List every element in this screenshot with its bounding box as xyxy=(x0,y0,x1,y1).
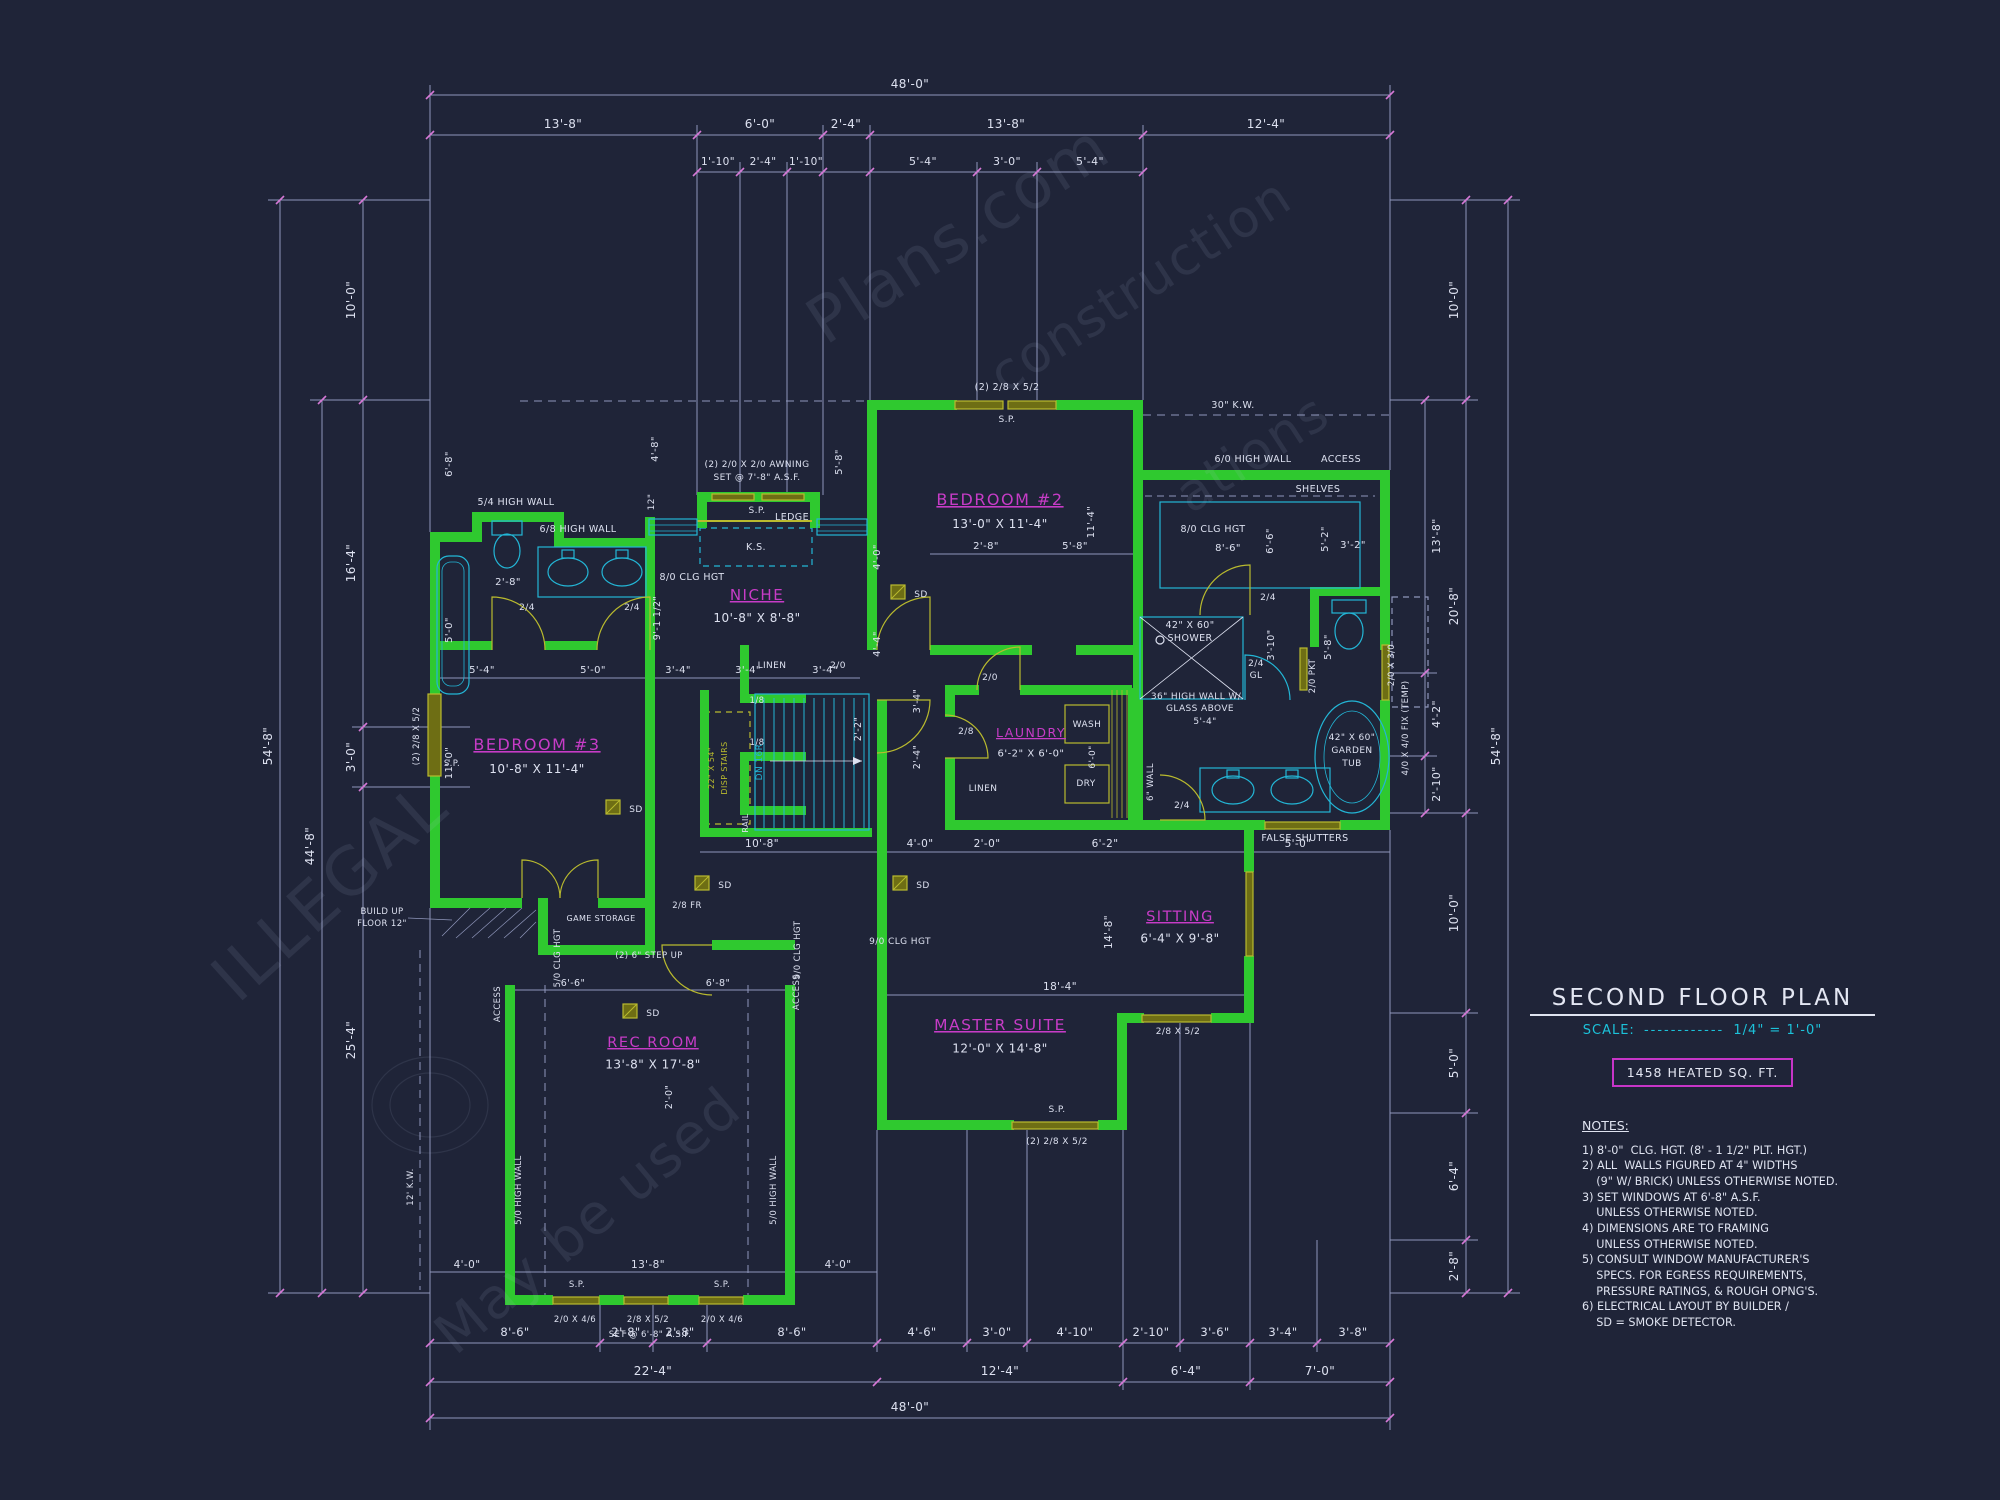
annotation-text: 7'-0" xyxy=(1305,1364,1335,1378)
annotation-text: 12" xyxy=(647,494,657,511)
wall xyxy=(785,985,795,1303)
annotation-text: 3'-10" xyxy=(1266,630,1277,661)
annotation-text: 9/0 CLG HGT xyxy=(793,920,803,979)
annotation-text: 3'-0" xyxy=(982,1325,1011,1339)
annotation-text: 5'-8" xyxy=(1062,541,1088,552)
annotation-text: 1'-10" xyxy=(701,156,735,168)
annotation-text: 8/0 CLG HGT xyxy=(660,572,725,583)
annotation-text: DN 16R xyxy=(755,744,765,781)
window xyxy=(762,494,804,500)
notes-section: NOTES: 1) 8'-0" CLG. HGT. (8' - 1 1/2" P… xyxy=(1530,1117,1875,1331)
annotation-text: LINEN xyxy=(969,784,998,794)
annotation-text: GL xyxy=(1250,671,1263,681)
annotation-text: 2'-0" xyxy=(974,838,1001,850)
watermark: ILLEGAL xyxy=(197,766,463,1016)
annotation-text: 4'-0" xyxy=(825,1259,852,1271)
note-line: 3) SET WINDOWS AT 6'-8" A.S.F. xyxy=(1582,1190,1875,1206)
scale-label: SCALE: xyxy=(1583,1023,1635,1038)
annotation-text: 5'-8" xyxy=(834,449,845,475)
window xyxy=(1246,872,1253,956)
annotation-text: (2) 2/8 X 5/2 xyxy=(412,707,422,766)
annotation-text: 5'-0" xyxy=(580,665,606,676)
plan-line xyxy=(456,908,490,938)
annotation-text: 3'-4" xyxy=(912,689,923,714)
annotation-text: 13'-8" xyxy=(1430,518,1443,553)
scale-value: 1/4" = 1'-0" xyxy=(1733,1023,1822,1038)
wall xyxy=(1098,1120,1117,1130)
annotation-text: 2'-8" xyxy=(1447,1251,1461,1281)
annotation-text: SD xyxy=(916,881,929,891)
annotation-text: 9/0 CLG HGT xyxy=(869,937,931,947)
window xyxy=(817,519,867,535)
annotation-text: 8'-6" xyxy=(1215,543,1241,554)
toilet-tank xyxy=(1332,600,1366,613)
annotation-text: 5'-2" xyxy=(1320,526,1331,552)
annotation-text: 10'-0" xyxy=(1447,281,1461,319)
wall xyxy=(1380,470,1390,650)
plan-title: SECOND FLOOR PLAN xyxy=(1530,985,1875,1016)
stair-arrow-head xyxy=(853,757,862,765)
wall xyxy=(1340,820,1390,830)
wall xyxy=(740,752,749,810)
annotation-text: 2/0 xyxy=(982,673,998,683)
annotation-text: 12'-4" xyxy=(981,1364,1019,1378)
annotation-text: 2'-10" xyxy=(1430,766,1443,801)
annotation-text: S.P. xyxy=(714,1280,730,1290)
notes-title: NOTES: xyxy=(1582,1117,1875,1135)
annotation-text: 11'-0" xyxy=(444,747,455,779)
annotation-text: 3'-0" xyxy=(344,742,358,772)
faucet xyxy=(616,550,628,558)
window xyxy=(553,1297,599,1304)
annotation-text: 36" HIGH WALL W/ xyxy=(1151,692,1242,702)
annotation-text: 22" X 54" xyxy=(707,747,716,789)
wall xyxy=(1076,645,1133,655)
annotation-text: 18'-4" xyxy=(1043,981,1077,993)
wall xyxy=(1020,685,1132,695)
annotation-text: 6'-0" xyxy=(745,117,775,131)
annotation-text: 2/4 xyxy=(624,603,640,613)
window xyxy=(649,519,697,535)
annotation-text: GAME STORAGE xyxy=(566,914,635,923)
annotation-text: 2/0 X 4/6 xyxy=(701,1315,743,1325)
annotation-text: 22'-4" xyxy=(634,1364,672,1378)
annotation-text: 2/8 X 5/2 xyxy=(627,1315,669,1325)
plan-ellipse xyxy=(1324,711,1380,803)
annotation-text: 5'-4" xyxy=(909,155,937,168)
window xyxy=(1012,1122,1098,1129)
heated-area-box: 1458 HEATED SQ. FT. xyxy=(1612,1058,1794,1087)
annotation-text: 1/8 xyxy=(750,696,765,706)
annotation-text: 2/8 xyxy=(958,727,974,737)
sink xyxy=(1271,776,1313,804)
annotation-text: SET @ 7'-8" A.S.F. xyxy=(713,473,800,483)
wall xyxy=(545,641,597,650)
annotation-text: 6'-6" xyxy=(561,978,586,989)
wall xyxy=(430,532,440,696)
room-label: LAUNDRY xyxy=(996,725,1066,740)
annotation-text: 13'-8" xyxy=(544,117,582,131)
note-line: SPECS. FOR EGRESS REQUIREMENTS, xyxy=(1582,1268,1875,1284)
annotation-text: 3'-8" xyxy=(1338,1325,1367,1339)
annotation-text: 5/4 HIGH WALL xyxy=(478,497,555,508)
annotation-text: 4'-0" xyxy=(872,544,883,570)
toilet-tank xyxy=(492,521,522,535)
annotation-text: 2'-8" xyxy=(973,541,999,552)
wall xyxy=(867,400,877,650)
wall xyxy=(599,1295,624,1305)
wall xyxy=(740,752,806,761)
annotation-text: SHELVES xyxy=(1296,484,1341,495)
garden-tub xyxy=(1315,701,1389,813)
room-label: MASTER SUITE xyxy=(934,1016,1066,1034)
wall xyxy=(712,940,795,950)
annotation-text: 10'-8" xyxy=(745,838,779,850)
plan-line xyxy=(472,908,506,938)
annotation-text: 2'-4" xyxy=(750,156,777,168)
annotation-text: 2/0 X 4/6 xyxy=(554,1315,596,1325)
annotation-text: 5'-4" xyxy=(469,665,495,676)
plan-line xyxy=(520,922,536,938)
annotation-text: SD xyxy=(646,1009,659,1019)
annotation-text: LEDGE xyxy=(775,512,809,523)
wall xyxy=(945,685,955,717)
annotation-text: 13'-8" xyxy=(987,117,1025,131)
window xyxy=(712,494,754,500)
title-block: SECOND FLOOR PLAN SCALE: ------------ 1/… xyxy=(1530,985,1875,1331)
window xyxy=(699,1297,743,1304)
wall xyxy=(430,898,522,908)
wall xyxy=(1244,956,1254,1023)
annotation-text: 1'-10" xyxy=(789,156,823,168)
annotation-text: GLASS ABOVE xyxy=(1166,704,1234,714)
annotation-text: RAIL xyxy=(741,813,750,832)
annotation-text: DISP STAIRS xyxy=(720,741,729,794)
annotation-text: 6/8 HIGH WALL xyxy=(540,524,617,535)
room-size: 12'-0" X 14'-8" xyxy=(952,1042,1047,1056)
vanity xyxy=(538,547,646,597)
wall xyxy=(668,1295,699,1305)
plan-scale: SCALE: ------------ 1/4" = 1'-0" xyxy=(1530,1023,1875,1038)
sink xyxy=(1212,776,1254,804)
annotation-text: SD xyxy=(718,881,731,891)
wall xyxy=(930,645,1032,655)
door-swing xyxy=(1200,565,1250,615)
wall xyxy=(1056,400,1143,410)
wall xyxy=(945,820,1135,830)
note-line: UNLESS OTHERWISE NOTED. xyxy=(1582,1237,1875,1253)
annotation-text: 8/0 CLG HGT xyxy=(1181,524,1246,535)
room-label: BEDROOM #2 xyxy=(936,490,1063,509)
room-label: REC ROOM xyxy=(607,1035,698,1051)
window xyxy=(1265,822,1340,829)
annotation-text: 6'-2" xyxy=(1092,838,1119,850)
annotation-text: 5/0 HIGH WALL xyxy=(514,1155,524,1224)
shower-drain xyxy=(1156,636,1164,644)
annotation-text: 48'-0" xyxy=(891,1400,929,1414)
wall xyxy=(743,1295,795,1305)
annotation-text: SD xyxy=(629,805,642,815)
annotation-text: 4'-8" xyxy=(650,436,661,462)
wall xyxy=(645,898,655,955)
faucet xyxy=(562,550,574,558)
annotation-text: 2/0 PKT xyxy=(1308,658,1318,693)
annotation-text: S.P. xyxy=(998,415,1015,425)
annotation-text: TUB xyxy=(1341,759,1361,769)
annotation-text: 2/8 FR xyxy=(672,901,702,911)
wall xyxy=(1133,820,1265,830)
annotation-text: 2'-4" xyxy=(912,745,923,770)
room-size: 6'-2" X 6'-0" xyxy=(997,749,1064,760)
annotation-text: 12'-4" xyxy=(1247,117,1285,131)
annotation-text: 4'-4" xyxy=(872,631,883,657)
sink xyxy=(548,558,588,586)
annotation-text: 16'-4" xyxy=(344,544,358,582)
room-size: 13'-8" X 17'-8" xyxy=(605,1058,700,1072)
annotation-text: 3'-4" xyxy=(1268,1325,1297,1339)
annotation-text: 42" X 60" xyxy=(1329,733,1376,743)
annotation-text: 25'-4" xyxy=(344,1021,358,1059)
annotation-text: 6'-8" xyxy=(444,451,455,477)
toilet xyxy=(1335,613,1363,649)
annotation-text: 2'-4" xyxy=(831,117,861,131)
wall xyxy=(554,538,654,547)
annotation-text: 48'-0" xyxy=(891,77,929,91)
annotation-text: 42" X 60" xyxy=(1165,620,1214,631)
annotation-text: 4'-10" xyxy=(1057,1325,1094,1339)
annotation-text: 6" WALL xyxy=(1146,763,1156,801)
annotation-text: 4'-0" xyxy=(454,1259,481,1271)
heated-area-value: 1458 HEATED SQ. FT. xyxy=(1627,1065,1779,1080)
annotation-text: 2/4 xyxy=(1260,593,1276,603)
window xyxy=(955,401,1003,409)
annotation-text: 5'-0" xyxy=(1285,838,1312,850)
annotation-text: 6'-8" xyxy=(706,978,731,989)
notes-list: 1) 8'-0" CLG. HGT. (8' - 1 1/2" PLT. HGT… xyxy=(1582,1143,1875,1331)
note-line: SD = SMOKE DETECTOR. xyxy=(1582,1315,1875,1331)
annotation-text: 4'-2" xyxy=(1430,700,1443,728)
room-label: SITTING xyxy=(1146,909,1214,925)
annotation-text: 5'-0" xyxy=(1447,1048,1461,1078)
annotation-text: K.S. xyxy=(746,542,766,553)
wall xyxy=(430,641,492,650)
annotation-text: SHOWER xyxy=(1167,633,1212,644)
annotation-text: S.P. xyxy=(1048,1105,1065,1115)
annotation-text: 2'-10" xyxy=(1133,1325,1170,1339)
room-label: BEDROOM #3 xyxy=(473,735,600,754)
plan-line xyxy=(488,908,522,938)
annotation-text: 2'-2" xyxy=(853,717,864,742)
note-line: 4) DIMENSIONS ARE TO FRAMING xyxy=(1582,1221,1875,1237)
wall xyxy=(1117,1013,1144,1023)
vanity xyxy=(1200,768,1330,812)
annotation-text: ACCESS xyxy=(1321,454,1361,465)
wall xyxy=(1128,688,1138,828)
annotation-text: WASH xyxy=(1073,720,1102,730)
sink xyxy=(602,558,642,586)
plan-line xyxy=(442,908,470,936)
wall xyxy=(877,700,887,1130)
window xyxy=(624,1297,668,1304)
annotation-text: 10'-0" xyxy=(344,281,358,319)
wall xyxy=(1133,470,1143,562)
annotation-text: S.P. xyxy=(748,506,765,516)
door-swing xyxy=(1160,775,1205,820)
annotation-text: 20'-8" xyxy=(1447,587,1461,625)
annotation-text: 4/0 X 4/0 FIX (TEMP) xyxy=(1401,681,1411,776)
annotation-text: (2) 6" STEP UP xyxy=(615,951,683,961)
annotation-text: 14'-8" xyxy=(1103,915,1115,949)
annotation-text: 54'-8" xyxy=(261,727,275,765)
annotation-text: 2/0 X 3/0 xyxy=(1387,644,1397,686)
annotation-text: 3'-2" xyxy=(1340,540,1366,551)
annotation-text: 3'-4" xyxy=(665,665,691,676)
wall xyxy=(1244,830,1254,872)
annotation-text: FLOOR 12" xyxy=(357,919,407,929)
annotation-text: 5'-0" xyxy=(444,617,455,643)
annotation-text: 2/4 xyxy=(1248,659,1264,669)
annotation-text: 2'-0" xyxy=(664,1085,675,1110)
annotation-text: 5/0 HIGH WALL xyxy=(769,1155,779,1224)
annotation-text: 2/4 xyxy=(519,603,535,613)
door-swing xyxy=(522,860,560,898)
annotation-text: 10'-0" xyxy=(1447,894,1461,932)
annotation-text: 13'-8" xyxy=(631,1259,665,1271)
annotation-text: (2) 2/0 X 2/0 AWNING xyxy=(705,460,810,470)
blueprint-page: SDSDSDSDSD48'-0"13'-8"6'-0"2'-4"13'-8"12… xyxy=(0,0,2000,1500)
annotation-text: ACCESS xyxy=(493,986,503,1022)
annotation-text: 6'-4" xyxy=(1447,1161,1461,1191)
note-line: PRESSURE RATINGS, & ROUGH OPNG'S. xyxy=(1582,1284,1875,1300)
annotation-text: 2/8 X 5/2 xyxy=(1156,1027,1200,1037)
note-line: 5) CONSULT WINDOW MANUFACTURER'S xyxy=(1582,1252,1875,1268)
wall xyxy=(877,1120,1014,1130)
annotation-text: 3'-6" xyxy=(1200,1325,1229,1339)
window xyxy=(1142,1015,1211,1022)
annotation-text: 2/4 xyxy=(1174,801,1190,811)
wall xyxy=(700,828,872,837)
annotation-text: LINEN xyxy=(758,661,787,671)
annotation-text: 6'-0" xyxy=(1088,745,1098,768)
wall xyxy=(1117,1013,1127,1130)
annotation-text: 9'-1 1/2" xyxy=(652,596,663,640)
annotation-text: 54'-8" xyxy=(1489,727,1503,765)
room-label: NICHE xyxy=(730,586,784,604)
room-size: 10'-8" X 8'-8" xyxy=(713,611,800,625)
annotation-text: 12' K.W. xyxy=(406,1168,416,1205)
wall xyxy=(810,492,820,528)
room-size: 10'-8" X 11'-4" xyxy=(489,762,584,776)
door-swing xyxy=(560,860,598,898)
pocket-door xyxy=(1300,648,1307,690)
annotation-text: DRY xyxy=(1076,779,1095,789)
note-line: UNLESS OTHERWISE NOTED. xyxy=(1582,1205,1875,1221)
annotation-text: SD xyxy=(914,590,927,600)
annotation-text: 6'-4" xyxy=(1171,1364,1201,1378)
annotation-text: 4'-6" xyxy=(907,1325,936,1339)
toilet xyxy=(494,534,520,568)
wall xyxy=(945,758,955,828)
note-line: 6) ELECTRICAL LAYOUT BY BUILDER / xyxy=(1582,1299,1875,1315)
door-swing xyxy=(877,597,930,650)
plan-line xyxy=(504,910,536,938)
annotation-text: ACCESS xyxy=(792,974,802,1010)
room-size: 13'-0" X 11'-4" xyxy=(952,517,1047,531)
wall xyxy=(867,400,957,410)
scale-dashes: ------------ xyxy=(1644,1023,1724,1038)
annotation-text: SET @ 6'-8" A.S.F. xyxy=(609,1330,692,1340)
wall xyxy=(1310,587,1319,647)
annotation-text: 2'-8" xyxy=(495,577,521,588)
room-size: 6'-4" X 9'-8" xyxy=(1140,932,1219,946)
note-line: 1) 8'-0" CLG. HGT. (8' - 1 1/2" PLT. HGT… xyxy=(1582,1143,1875,1159)
window xyxy=(428,694,441,776)
annotation-text: 11'-4" xyxy=(1086,506,1097,538)
annotation-text: 5'-8" xyxy=(1323,634,1334,660)
annotation-text: 6'-6" xyxy=(1265,528,1276,554)
annotation-text: S.P. xyxy=(569,1280,585,1290)
annotation-text: 30" K.W. xyxy=(1211,400,1254,411)
wall xyxy=(645,650,655,908)
annotation-text: 4'-0" xyxy=(907,838,934,850)
annotation-text: 8'-6" xyxy=(777,1325,806,1339)
annotation-text: 2/0 xyxy=(830,661,846,671)
annotation-text: (2) 2/8 X 5/2 xyxy=(1026,1137,1088,1147)
note-line: 2) ALL WALLS FIGURED AT 4" WIDTHS xyxy=(1582,1158,1875,1174)
annotation-text: GARDEN xyxy=(1331,746,1372,756)
annotation-text: 5'-4" xyxy=(1193,717,1216,727)
note-line: (9" W/ BRICK) UNLESS OTHERWISE NOTED. xyxy=(1582,1174,1875,1190)
